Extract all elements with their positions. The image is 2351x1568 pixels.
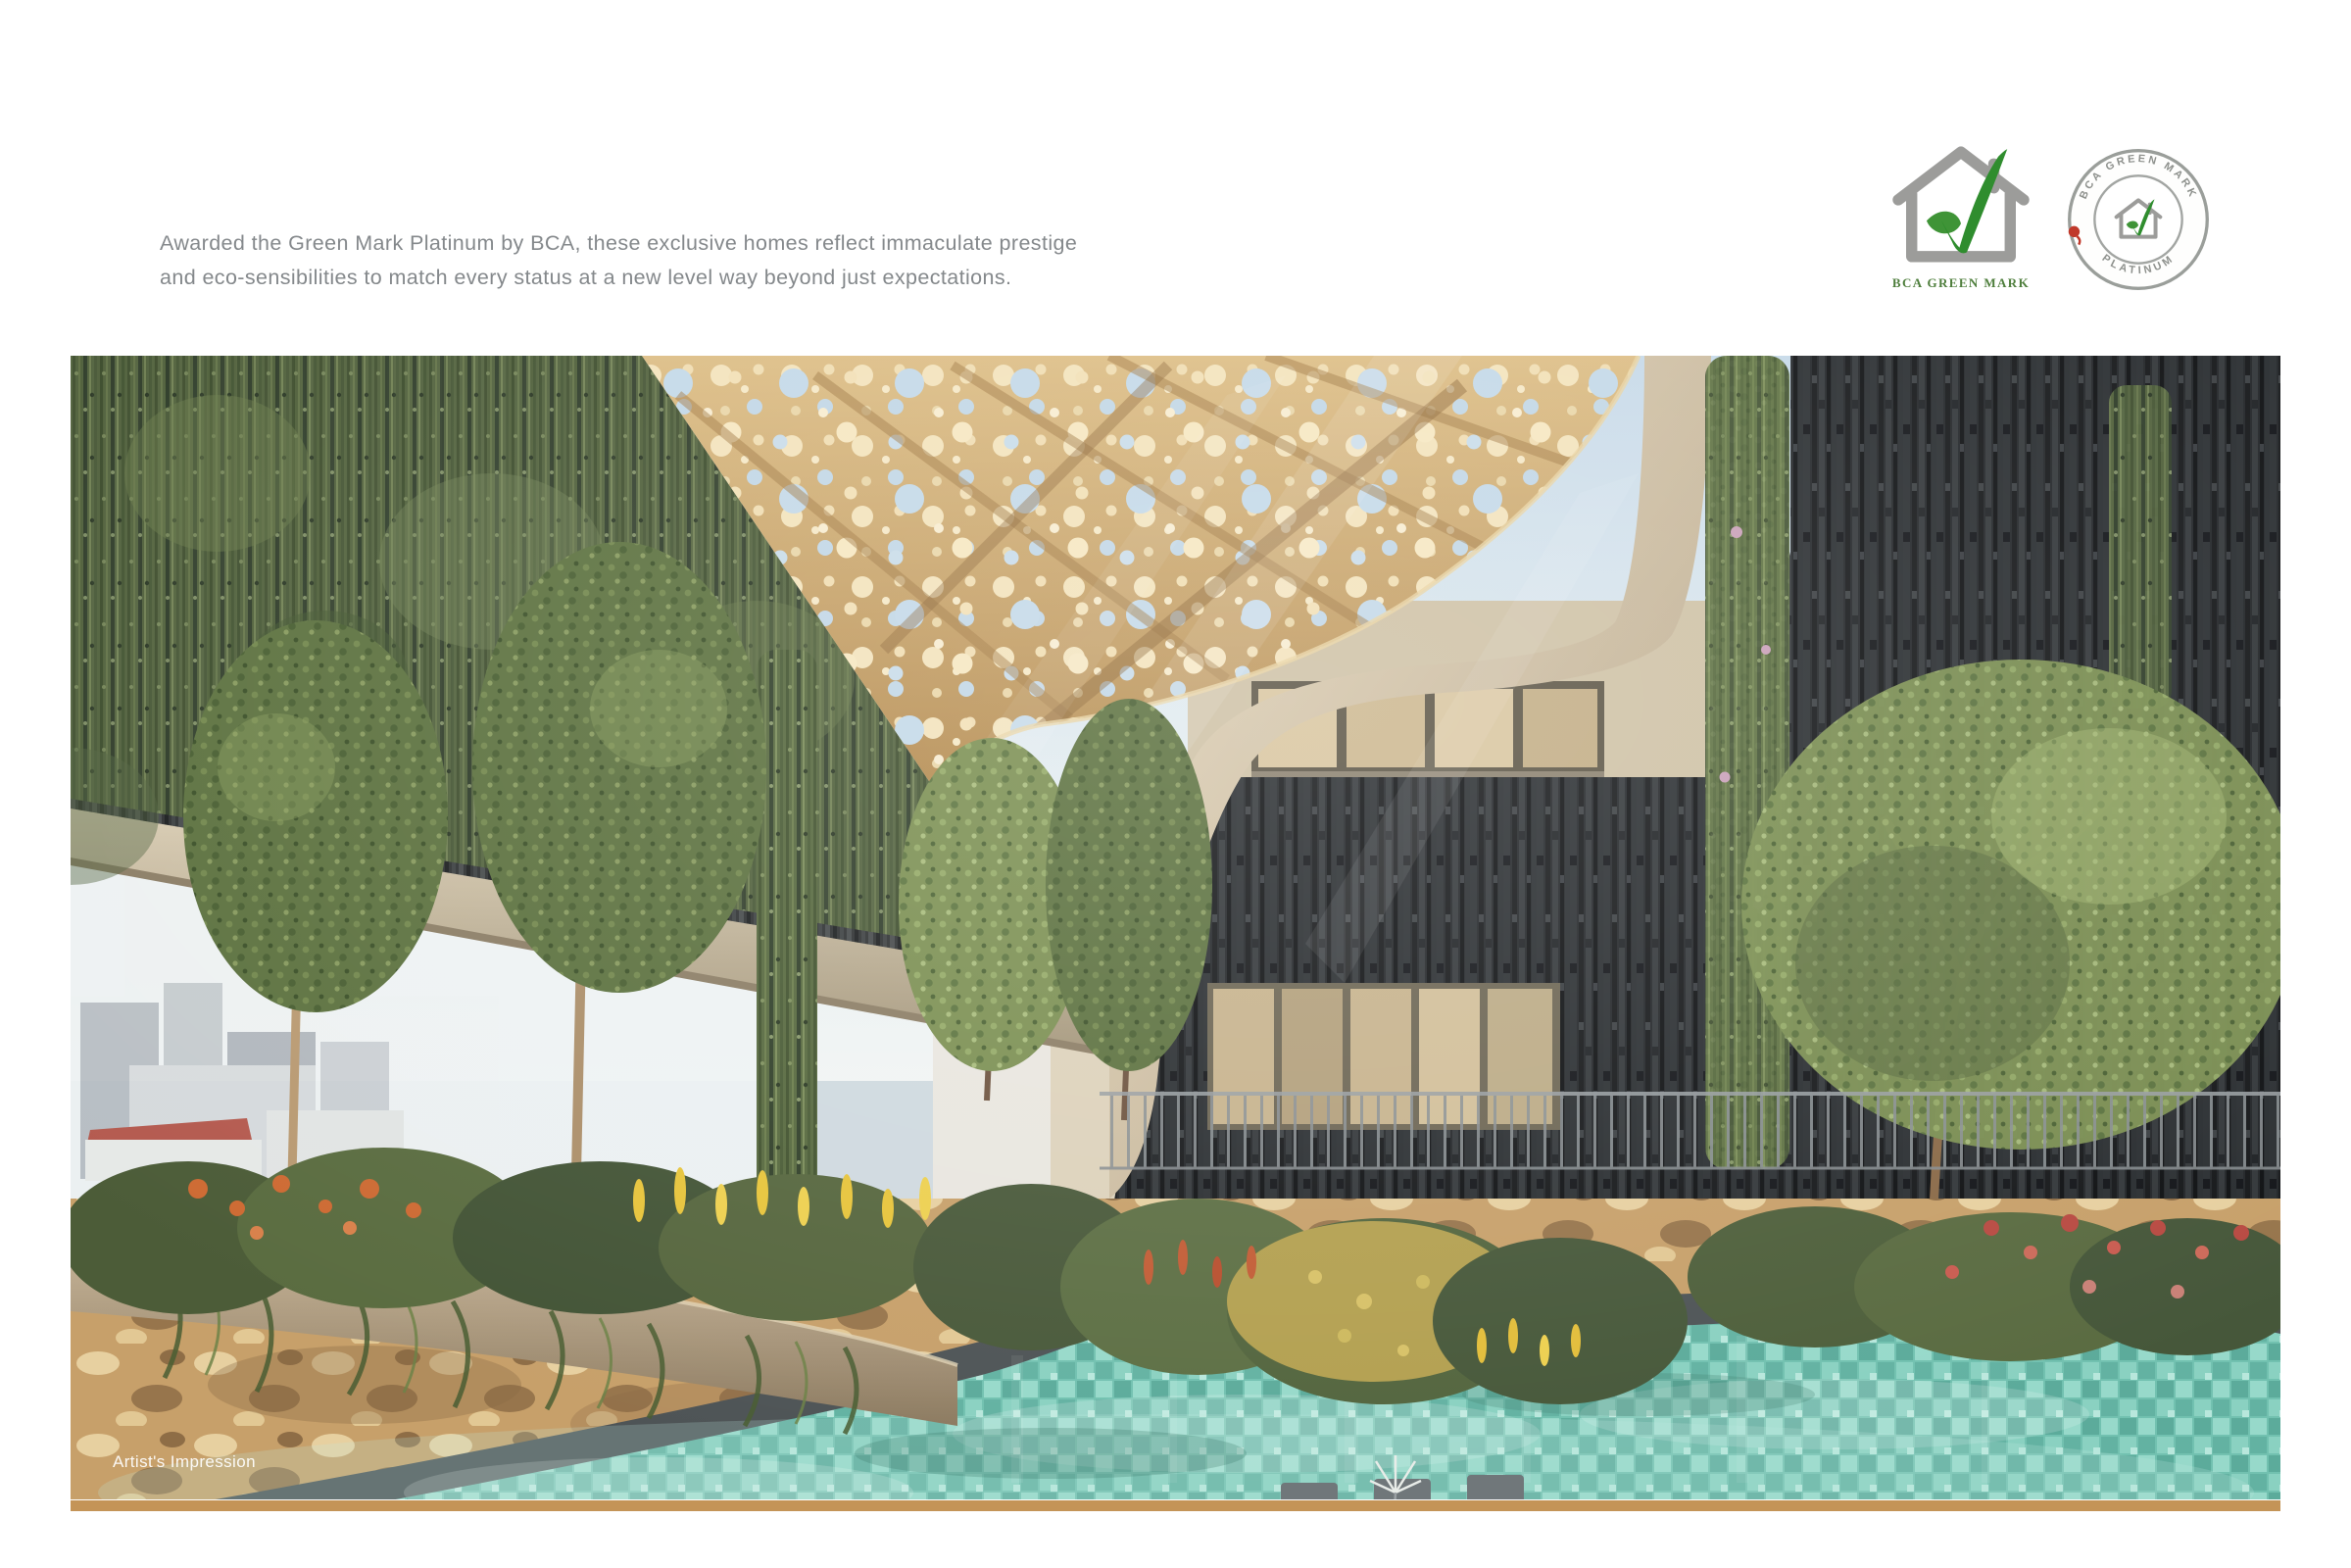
- gold-accent-bar: [71, 1500, 2280, 1511]
- badge-inner-ring: [2094, 175, 2181, 263]
- artists-impression-caption: Artist's Impression: [113, 1452, 256, 1472]
- bca-platinum-badge: BCA GREEN MARK PLATINUM: [2064, 145, 2213, 294]
- courtyard-rendering: Artist's Impression: [71, 356, 2280, 1499]
- gold-bar-fill: [71, 1500, 2280, 1511]
- intro-paragraph: Awarded the Green Mark Platinum by BCA, …: [160, 226, 1077, 295]
- bca-green-mark-label: BCA GREEN MARK: [1884, 275, 2038, 291]
- leaf-shape: [1927, 212, 1961, 234]
- brochure-page: Awarded the Green Mark Platinum by BCA, …: [0, 0, 2351, 1568]
- sunlight-haze: [71, 356, 2280, 1499]
- intro-line-1: Awarded the Green Mark Platinum by BCA, …: [160, 226, 1077, 261]
- platinum-badge-icon: BCA GREEN MARK PLATINUM: [2064, 145, 2213, 294]
- badge-red-seal: [2069, 226, 2080, 237]
- bca-green-mark-logo: BCA GREEN MARK: [1884, 143, 2038, 291]
- gold-bar-graphic: [71, 1500, 2280, 1511]
- intro-line-2: and eco-sensibilities to match every sta…: [160, 261, 1077, 295]
- award-logos: BCA GREEN MARK BCA GREEN MARK PLATINUM: [1884, 143, 2223, 300]
- bca-house-check-icon: [1884, 143, 2038, 269]
- courtyard-scene: [71, 356, 2280, 1499]
